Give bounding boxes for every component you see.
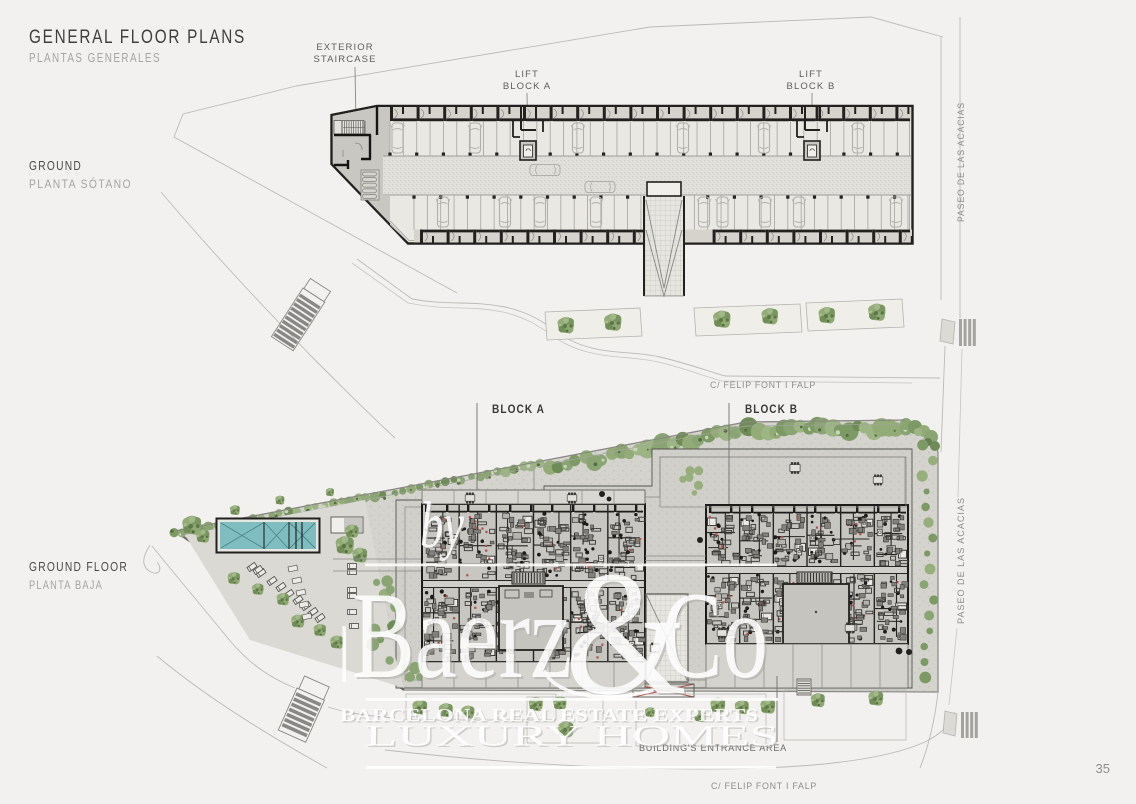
svg-text:LUXURY HOMES: LUXURY HOMES	[365, 720, 779, 753]
svg-text:PLANTA SÓTANO: PLANTA SÓTANO	[29, 176, 132, 191]
svg-text:BLOCK A: BLOCK A	[503, 81, 551, 92]
svg-text:LIFT: LIFT	[515, 69, 539, 80]
svg-text:LIFT: LIFT	[799, 69, 823, 80]
svg-text:EXTERIOR: EXTERIOR	[316, 42, 373, 53]
svg-text:C/ FELIP FONT I FALP: C/ FELIP FONT I FALP	[710, 380, 816, 391]
svg-text:GENERAL FLOOR PLANS: GENERAL FLOOR PLANS	[29, 26, 246, 48]
svg-text:STAIRCASE: STAIRCASE	[313, 54, 376, 65]
svg-text:PLANTAS GENERALES: PLANTAS GENERALES	[29, 51, 161, 65]
svg-text:BLOCK B: BLOCK B	[745, 404, 798, 416]
svg-text:by: by	[420, 489, 464, 562]
svg-text:BLOCK A: BLOCK A	[492, 404, 545, 416]
svg-text:PLANTA BAJA: PLANTA BAJA	[29, 578, 103, 592]
svg-text:35: 35	[1096, 761, 1110, 776]
svg-text:BLOCK B: BLOCK B	[787, 81, 836, 92]
svg-text:GROUND: GROUND	[29, 158, 82, 173]
svg-text:Baerz: Baerz	[352, 567, 572, 704]
svg-text:C/ FELIP FONT I FALP: C/ FELIP FONT I FALP	[711, 781, 817, 792]
svg-text:Co: Co	[662, 567, 768, 704]
svg-text:PASEO DE LAS ACACIAS: PASEO DE LAS ACACIAS	[956, 497, 967, 624]
svg-text:PASEO DE LAS ACACIAS: PASEO DE LAS ACACIAS	[956, 102, 967, 222]
svg-text:GROUND FLOOR: GROUND FLOOR	[29, 559, 128, 574]
